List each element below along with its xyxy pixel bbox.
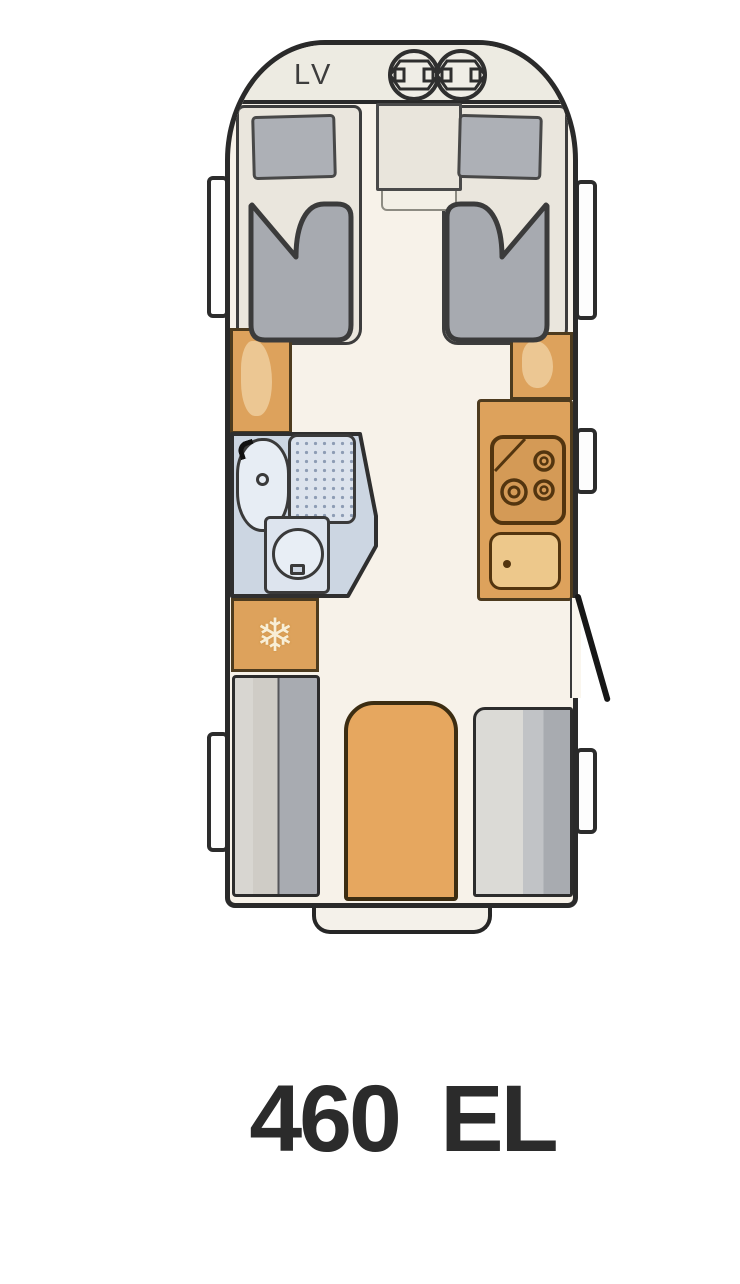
duvet-left-icon bbox=[244, 197, 358, 347]
snowflake-icon: ❄ bbox=[256, 612, 295, 658]
drain-icon bbox=[503, 560, 511, 568]
shower-tray-icon bbox=[288, 434, 356, 524]
bench-seat-right bbox=[473, 707, 573, 897]
basin-drain-icon bbox=[256, 473, 269, 486]
front-gas-locker: LV bbox=[230, 45, 573, 104]
pillow-left bbox=[251, 114, 337, 180]
floorplan-canvas: LV bbox=[0, 0, 740, 1284]
dining-table bbox=[344, 701, 458, 901]
front-locker-label: LV bbox=[294, 61, 333, 90]
duvet-right-icon bbox=[440, 197, 554, 347]
bench-seat-left bbox=[232, 675, 320, 897]
caravan-outline: LV bbox=[225, 40, 578, 908]
kitchen-block bbox=[477, 399, 573, 601]
window-right-lounge bbox=[575, 748, 597, 834]
gas-bottle-icon bbox=[382, 47, 512, 103]
wardrobe-door-detail bbox=[522, 341, 553, 388]
window-right-bed bbox=[575, 180, 597, 320]
nightstand-cabinet bbox=[376, 103, 462, 191]
wardrobe-door-detail bbox=[241, 341, 272, 416]
refrigerator: ❄ bbox=[231, 598, 319, 672]
window-kitchen bbox=[575, 428, 597, 494]
toilet-flush-icon bbox=[290, 564, 305, 575]
kitchen-sink-icon bbox=[489, 532, 561, 590]
pillow-right bbox=[457, 114, 543, 180]
model-name: 460 EL bbox=[225, 1072, 580, 1167]
stove-burner-icon bbox=[489, 434, 567, 526]
